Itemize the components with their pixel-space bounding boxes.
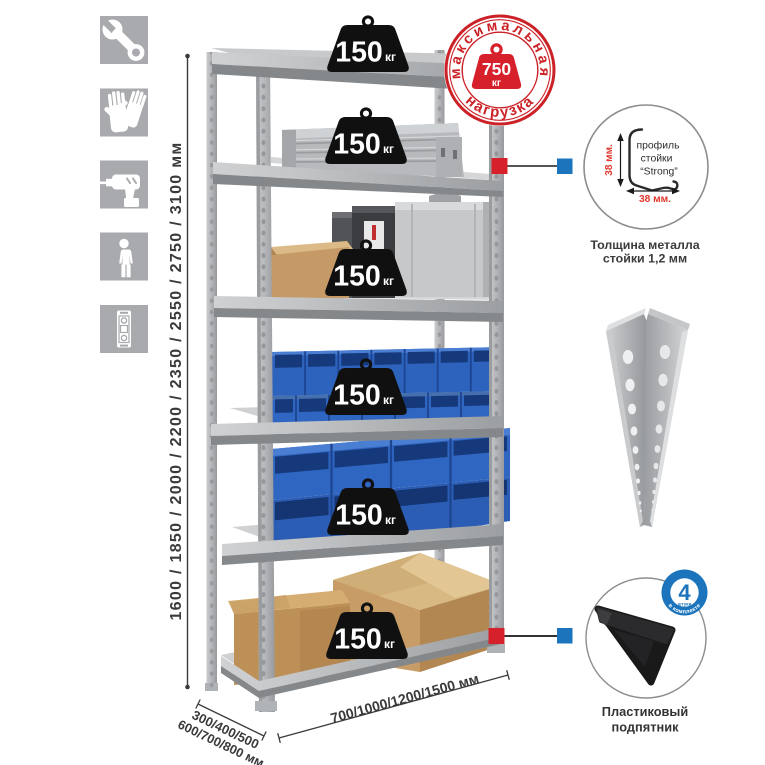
svg-text:кг: кг	[383, 393, 394, 407]
svg-text:150: 150	[335, 500, 383, 532]
svg-text:“Strong”: “Strong”	[640, 167, 678, 178]
svg-text:1600 / 1850 / 2000 / 2200 / 23: 1600 / 1850 / 2000 / 2200 / 2350 / 2550 …	[168, 141, 185, 620]
svg-text:профиль: профиль	[636, 140, 679, 152]
svg-text:кг: кг	[492, 78, 501, 89]
svg-text:кг: кг	[383, 142, 394, 156]
svg-text:кг: кг	[385, 50, 396, 64]
svg-text:750: 750	[482, 59, 511, 79]
svg-text:150: 150	[335, 37, 383, 69]
svg-text:штуки: штуки	[678, 602, 692, 607]
svg-text:150: 150	[333, 129, 381, 161]
svg-text:38 мм.: 38 мм.	[639, 194, 671, 205]
svg-text:Пластиковый: Пластиковый	[602, 704, 688, 719]
svg-text:стойки 1,2 мм: стойки 1,2 мм	[603, 252, 687, 266]
svg-text:кг: кг	[384, 637, 395, 651]
svg-text:подпятник: подпятник	[612, 720, 680, 735]
svg-text:150: 150	[334, 624, 382, 656]
svg-text:150: 150	[333, 380, 381, 412]
svg-text:кг: кг	[385, 513, 396, 527]
svg-text:150: 150	[333, 261, 381, 293]
svg-text:кг: кг	[383, 274, 394, 288]
svg-text:стойки: стойки	[641, 154, 673, 165]
svg-text:Толщина металла: Толщина металла	[590, 238, 699, 252]
svg-text:38 мм.: 38 мм.	[604, 144, 615, 176]
